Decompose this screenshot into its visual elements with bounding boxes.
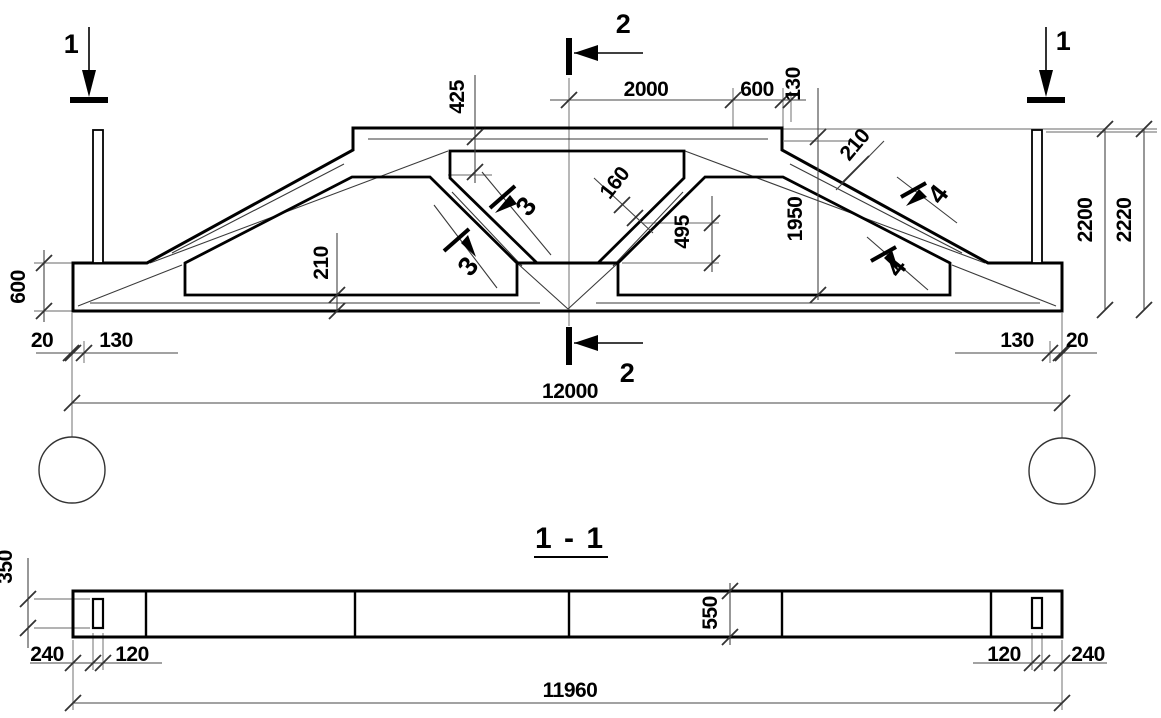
right-end-post — [1032, 130, 1042, 263]
dim-slab-height: 425 — [446, 79, 469, 113]
dim-hole-width-right: 120 — [987, 643, 1021, 666]
drawing-sheet: 1 1 2 2 3 — [0, 0, 1161, 718]
dim-gap-right: 20 — [1066, 329, 1088, 352]
dim-hole-length: 350 — [0, 550, 17, 584]
dim-height-inner: 2200 — [1074, 198, 1097, 243]
cut-plane-bar — [566, 327, 572, 365]
cut-plane-bar — [566, 38, 572, 75]
dim-seat-right: 130 — [1000, 329, 1034, 352]
dim-top-edge: 130 — [782, 67, 805, 101]
marker-label: 1 — [64, 29, 79, 59]
cut-plane-bar — [70, 97, 108, 103]
sheet-background — [0, 0, 1161, 718]
dim-gap-left: 20 — [31, 329, 53, 352]
lifting-hole-right — [1032, 598, 1042, 628]
dim-length: 11960 — [543, 679, 598, 702]
dim-mid-height: 1950 — [784, 197, 807, 242]
lifting-hole-left — [93, 599, 103, 628]
dim-end-offset-left: 240 — [30, 643, 64, 666]
left-end-post — [93, 130, 103, 263]
dim-top-right: 600 — [740, 78, 774, 101]
dim-end-height: 600 — [7, 270, 30, 304]
dim-depth: 550 — [699, 596, 722, 630]
section-title: 1 - 1 — [535, 522, 605, 555]
dim-height-total: 2220 — [1113, 198, 1136, 243]
marker-label: 2 — [616, 9, 631, 39]
dim-top-mid: 2000 — [624, 78, 669, 101]
marker-label: 2 — [620, 358, 635, 388]
dim-web-drop: 495 — [671, 214, 694, 248]
marker-label: 1 — [1056, 26, 1071, 56]
truss-drawing-canvas: 1 1 2 2 3 — [0, 0, 1161, 718]
dim-span: 12000 — [542, 380, 598, 403]
dim-seat-left: 130 — [99, 329, 133, 352]
cut-plane-bar — [1027, 97, 1065, 103]
dim-hole-width-left: 120 — [115, 643, 149, 666]
dim-chord-thickness: 210 — [310, 246, 333, 280]
dim-end-offset-right: 240 — [1071, 643, 1105, 666]
